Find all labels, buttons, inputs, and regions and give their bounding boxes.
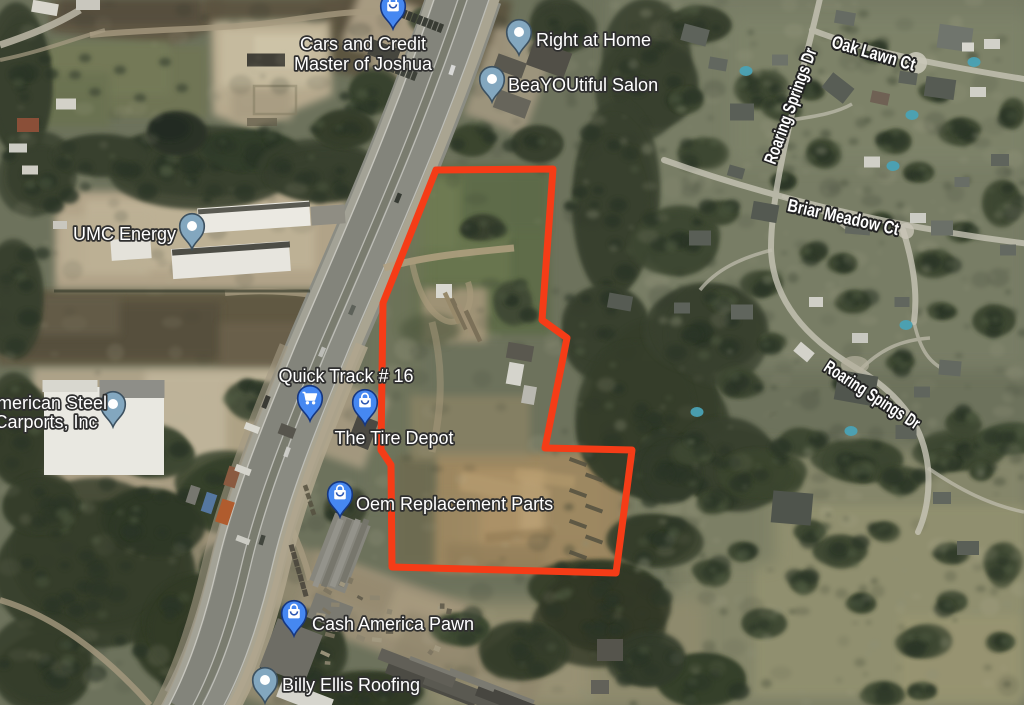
svg-text:Carports, Inc: Carports, Inc [0, 412, 98, 432]
svg-text:BeaYOUtiful Salon: BeaYOUtiful Salon [508, 75, 658, 95]
svg-text:Cars and Credit: Cars and Credit [300, 34, 426, 54]
svg-text:Right at Home: Right at Home [536, 30, 651, 50]
svg-text:Master of Joshua: Master of Joshua [294, 54, 433, 74]
svg-text:Oem Replacement Parts: Oem Replacement Parts [356, 494, 553, 514]
svg-text:Cash America Pawn: Cash America Pawn [312, 614, 474, 634]
svg-text:American Steel: American Steel [0, 393, 107, 413]
svg-text:Billy Ellis Roofing: Billy Ellis Roofing [282, 675, 420, 695]
svg-text:Quick Track # 16: Quick Track # 16 [278, 366, 413, 386]
svg-text:UMC Energy: UMC Energy [73, 224, 176, 244]
svg-text:The Tire Depot: The Tire Depot [334, 428, 453, 448]
